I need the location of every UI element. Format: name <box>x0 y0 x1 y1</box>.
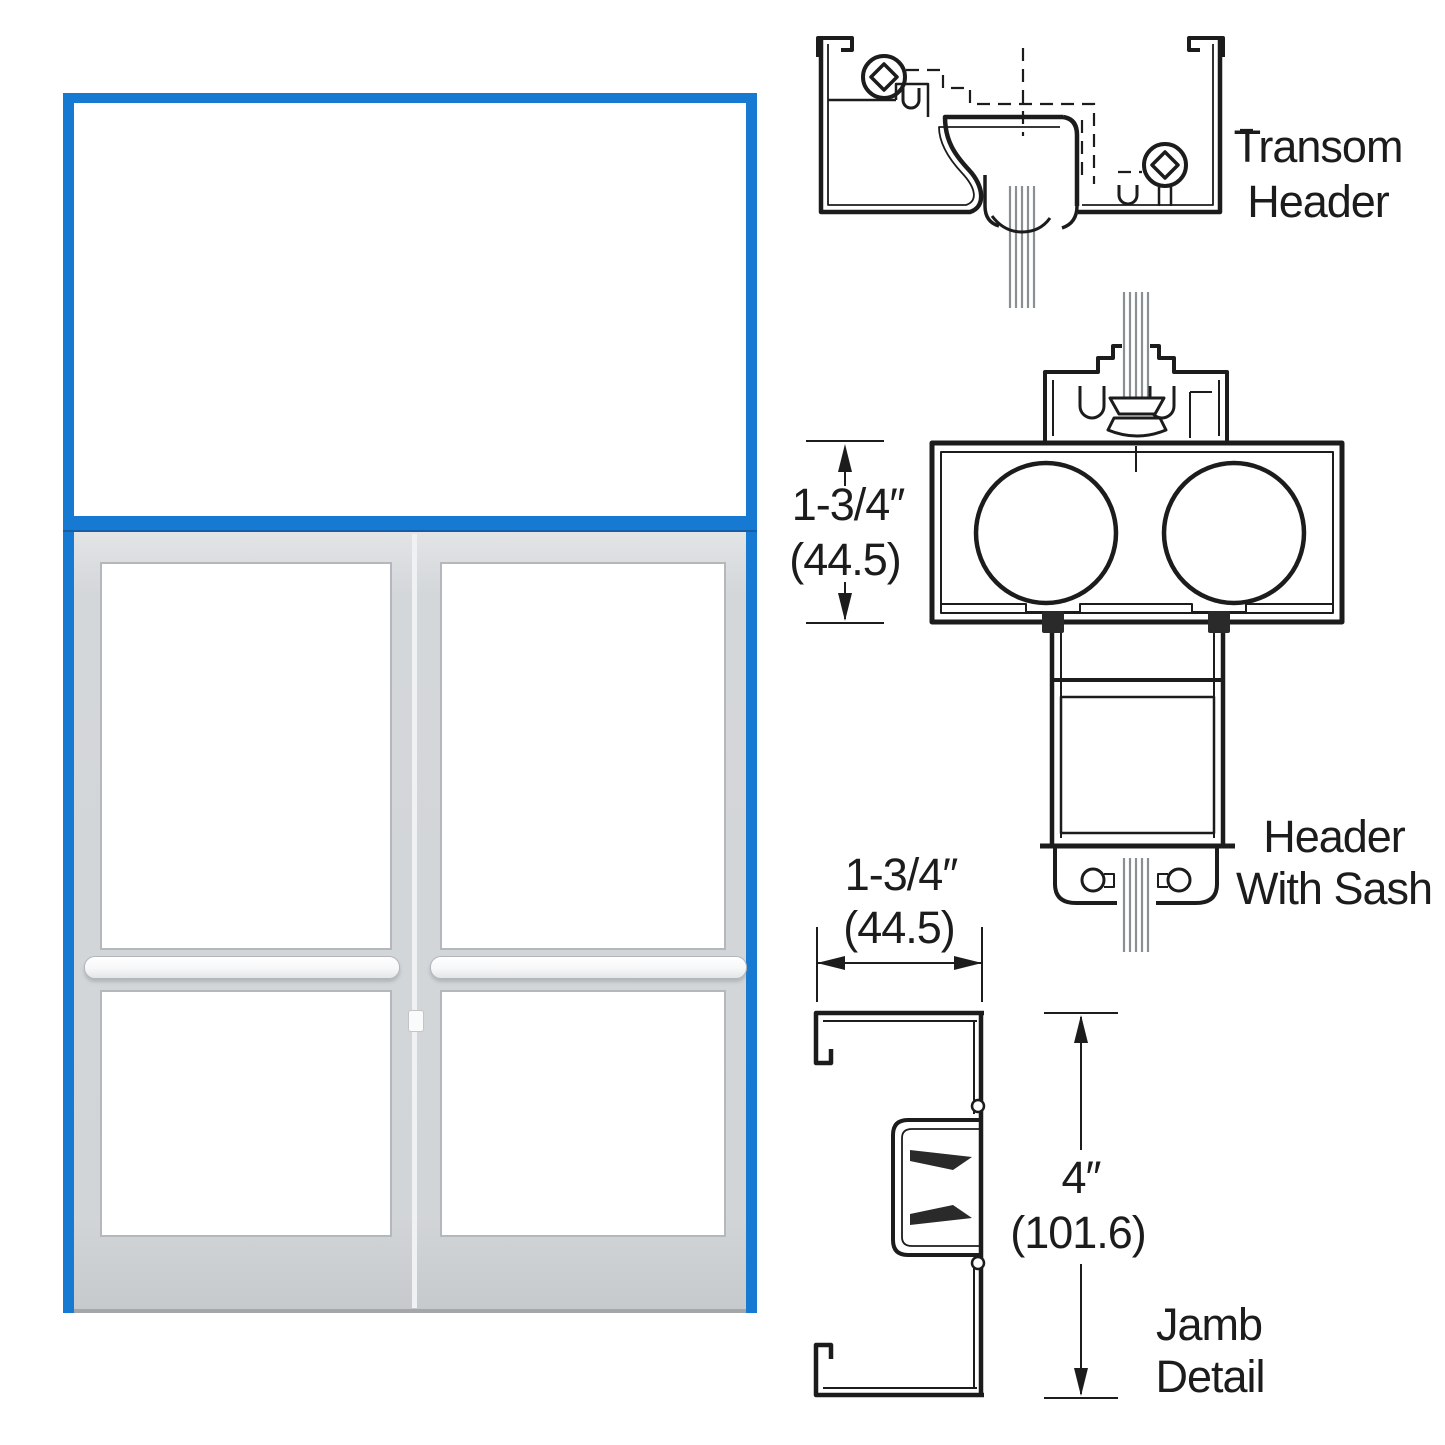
figure-canvas: Transom Header <box>0 0 1445 1445</box>
gasket-u <box>1080 386 1104 418</box>
lower-tube-inner-walls <box>1061 633 1214 838</box>
glazing-clip-block <box>1042 611 1064 633</box>
arrow-down <box>838 593 852 621</box>
jamb-pocket <box>893 1120 981 1255</box>
sash-gasket <box>1168 869 1190 891</box>
jamb-detail: 1-3/4″ (44.5) 4″ (101.6) Jamb Detail <box>816 849 1265 1402</box>
glazing-wedge <box>1110 398 1164 414</box>
right-channel-profile <box>1078 36 1220 212</box>
right-channel-inner-line <box>1082 44 1213 205</box>
web-bump <box>972 1257 984 1269</box>
dimension-primary: 1-3/4″ <box>792 479 906 530</box>
arrow-up <box>838 444 852 472</box>
screw-boss-diamond <box>1152 152 1178 178</box>
dimension-metric: (101.6) <box>1010 1207 1146 1258</box>
dimension-jamb-depth: 4″ (101.6) <box>1010 1013 1146 1398</box>
arrow-up <box>1074 1015 1088 1043</box>
tube-bottom-channel <box>941 604 1333 612</box>
arrow-down <box>1074 1368 1088 1396</box>
gasket-u <box>903 88 919 108</box>
upper-chamber-lines <box>828 84 928 117</box>
jamb-detail-label-line1: Jamb <box>1156 1299 1262 1350</box>
web-bump <box>972 1100 984 1112</box>
header-with-sash-label-line2: With Sash <box>1236 863 1432 914</box>
glazing-pocket-jaws <box>985 175 1077 228</box>
dimension-header-height: 1-3/4″ (44.5) <box>789 441 905 623</box>
dimension-jamb-width: 1-3/4″ (44.5) <box>817 849 982 1002</box>
header-with-sash-label-line1: Header <box>1263 811 1406 862</box>
dimension-metric: (44.5) <box>843 902 955 953</box>
transom-header-detail: Transom Header <box>818 36 1402 308</box>
sash-gasket <box>1082 869 1104 891</box>
lower-tube-box <box>1061 697 1214 833</box>
gasket-u <box>1119 185 1137 204</box>
left-channel-profile <box>821 36 1063 212</box>
lower-tube-walls <box>1052 633 1223 846</box>
glazing-wedge <box>1108 418 1166 436</box>
dimension-primary: 1-3/4″ <box>845 849 959 900</box>
jamb-pocket-inner <box>902 1129 981 1246</box>
snap-clip <box>910 1150 972 1170</box>
transom-header-label-line1: Transom <box>1234 121 1403 172</box>
arrow-right <box>954 956 982 970</box>
screw-slot-lines <box>1159 186 1171 206</box>
screw-race-circle <box>1164 463 1304 603</box>
detail-drawings: Transom Header <box>0 0 1445 1445</box>
snap-clip <box>910 1205 972 1225</box>
dimension-primary: 4″ <box>1062 1152 1102 1203</box>
glass-hatch <box>1124 292 1148 398</box>
transom-bar-corner <box>1063 117 1077 206</box>
dimension-metric: (44.5) <box>789 534 901 585</box>
glazing-clip-block <box>1208 611 1230 633</box>
screw-boss-diamond <box>871 64 897 90</box>
jamb-detail-label-line2: Detail <box>1155 1351 1264 1402</box>
transom-header-label-line2: Header <box>1247 176 1390 227</box>
arrow-left <box>817 956 845 970</box>
glass-hatch <box>1124 858 1148 952</box>
glass-hatch <box>1010 186 1034 308</box>
screw-race-circle <box>976 463 1116 603</box>
